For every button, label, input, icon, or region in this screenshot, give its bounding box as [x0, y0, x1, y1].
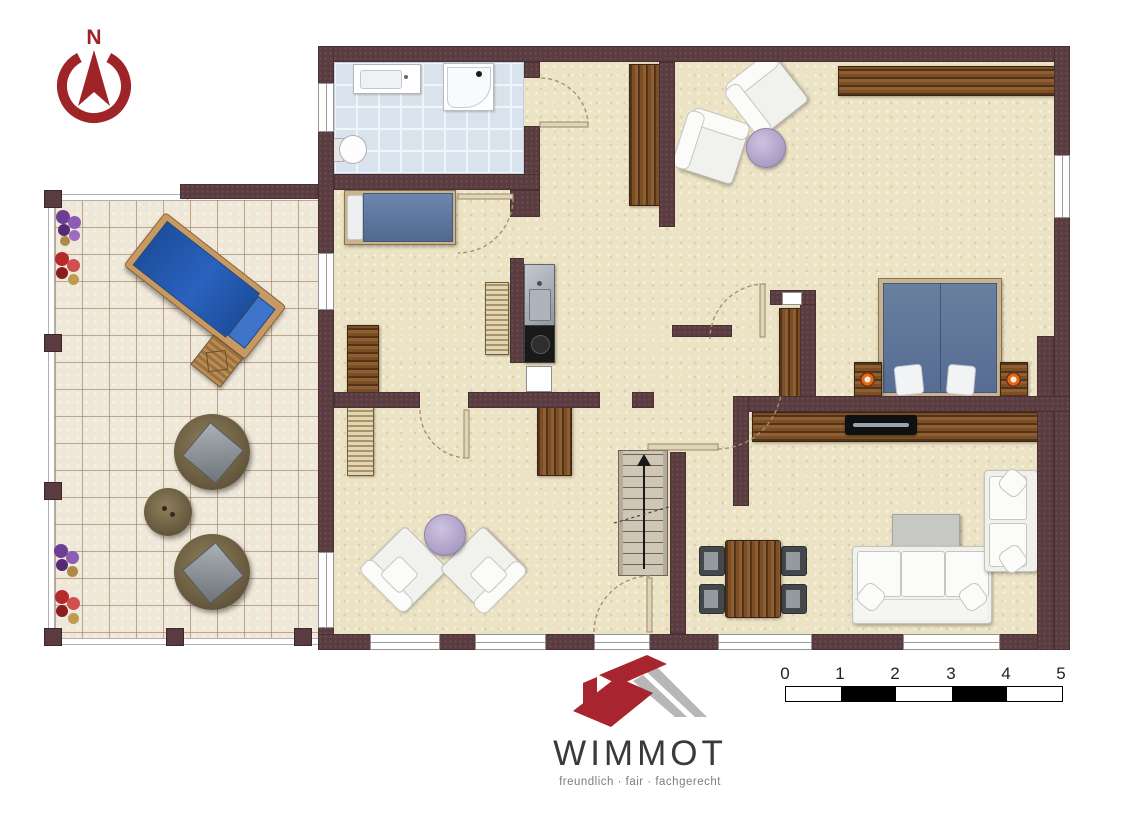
- staircase: [618, 450, 668, 576]
- loveseat: [984, 470, 1038, 572]
- scale-tick-5: 5: [1049, 664, 1073, 684]
- bed-pillow: [946, 364, 977, 396]
- wall: [468, 392, 600, 408]
- logo: WIMMOT freundlich · fair · fachgerecht: [520, 653, 760, 788]
- toilet: [330, 134, 368, 164]
- terrace-railing-left: [48, 194, 55, 646]
- scale-tick-2: 2: [883, 664, 907, 684]
- single-bed: [344, 190, 456, 245]
- wall: [334, 392, 420, 408]
- fence-post: [294, 628, 312, 646]
- wall: [318, 46, 1070, 62]
- bed-lamp: [860, 372, 875, 387]
- fence-post: [44, 190, 62, 208]
- wall: [334, 174, 540, 190]
- stair-direction-line: [643, 465, 645, 569]
- wicker-chair: [174, 414, 250, 490]
- wicker-chair: [174, 534, 250, 610]
- round-table: [424, 514, 466, 556]
- scale-bar: 0 1 2 3 4 5: [785, 664, 1063, 704]
- north-arrow-icon: [52, 44, 136, 128]
- scale-segment: [786, 687, 841, 701]
- wardrobe: [629, 64, 661, 206]
- terrace-wall: [180, 184, 318, 199]
- dining-chair: [781, 546, 807, 576]
- shaft: [782, 292, 802, 305]
- terrace-railing-bottom: [48, 638, 320, 645]
- window: [370, 634, 440, 650]
- logo-roof-icon: [565, 653, 715, 731]
- wall: [510, 258, 524, 363]
- wall: [510, 190, 540, 217]
- logo-tagline: freundlich · fair · fachgerecht: [520, 776, 760, 788]
- sofa: [852, 546, 992, 624]
- scale-segment: [1007, 687, 1062, 701]
- wall: [733, 396, 749, 506]
- wall: [632, 392, 654, 408]
- dining-table: [725, 540, 781, 618]
- nightstand: [1000, 362, 1028, 398]
- window: [318, 83, 334, 132]
- scale-bar-segments: [785, 686, 1063, 702]
- scale-tick-0: 0: [773, 664, 797, 684]
- wall: [800, 290, 816, 412]
- bed-lamp: [1006, 372, 1021, 387]
- wicker-table: [144, 488, 192, 536]
- dining-chair: [699, 546, 725, 576]
- window: [475, 634, 546, 650]
- wardrobe-long: [838, 66, 1056, 96]
- shower: [443, 63, 494, 111]
- round-table: [746, 128, 786, 168]
- logo-name: WIMMOT: [520, 736, 760, 773]
- scale-segment: [841, 687, 896, 701]
- tv: [845, 415, 917, 435]
- wardrobe: [537, 404, 572, 476]
- fence-post: [44, 482, 62, 500]
- fence-post: [44, 628, 62, 646]
- window: [903, 634, 1000, 650]
- fence-post: [166, 628, 184, 646]
- window: [718, 634, 812, 650]
- nightstand: [854, 362, 882, 398]
- shelf: [485, 282, 509, 355]
- wall: [659, 62, 675, 227]
- kitchenette: [524, 264, 555, 363]
- wall: [1037, 336, 1054, 650]
- scale-tick-1: 1: [828, 664, 852, 684]
- floor-plan-sheet: N: [0, 0, 1124, 830]
- dining-chair: [781, 584, 807, 614]
- wall: [672, 325, 732, 337]
- stove: [524, 325, 555, 363]
- wardrobe: [347, 325, 379, 395]
- wall: [1054, 46, 1070, 650]
- shelf: [347, 404, 374, 476]
- shaft: [526, 366, 552, 392]
- window: [318, 253, 334, 310]
- scale-tick-3: 3: [939, 664, 963, 684]
- double-bed: [878, 278, 1002, 400]
- kitchen-sink: [524, 264, 555, 327]
- scale-tick-4: 4: [994, 664, 1018, 684]
- wall: [670, 452, 686, 634]
- terrace-railing-top: [48, 194, 188, 201]
- wall: [745, 396, 1070, 412]
- entry-door: [594, 634, 650, 650]
- bed-pillow: [894, 364, 925, 397]
- stair-up-arrow-icon: [637, 454, 651, 466]
- dining-chair: [699, 584, 725, 614]
- fence-post: [44, 334, 62, 352]
- bathroom-sink: [353, 64, 421, 94]
- window: [318, 552, 334, 628]
- scale-segment: [896, 687, 951, 701]
- window: [1054, 155, 1070, 218]
- wall: [524, 62, 540, 78]
- scale-segment: [952, 687, 1007, 701]
